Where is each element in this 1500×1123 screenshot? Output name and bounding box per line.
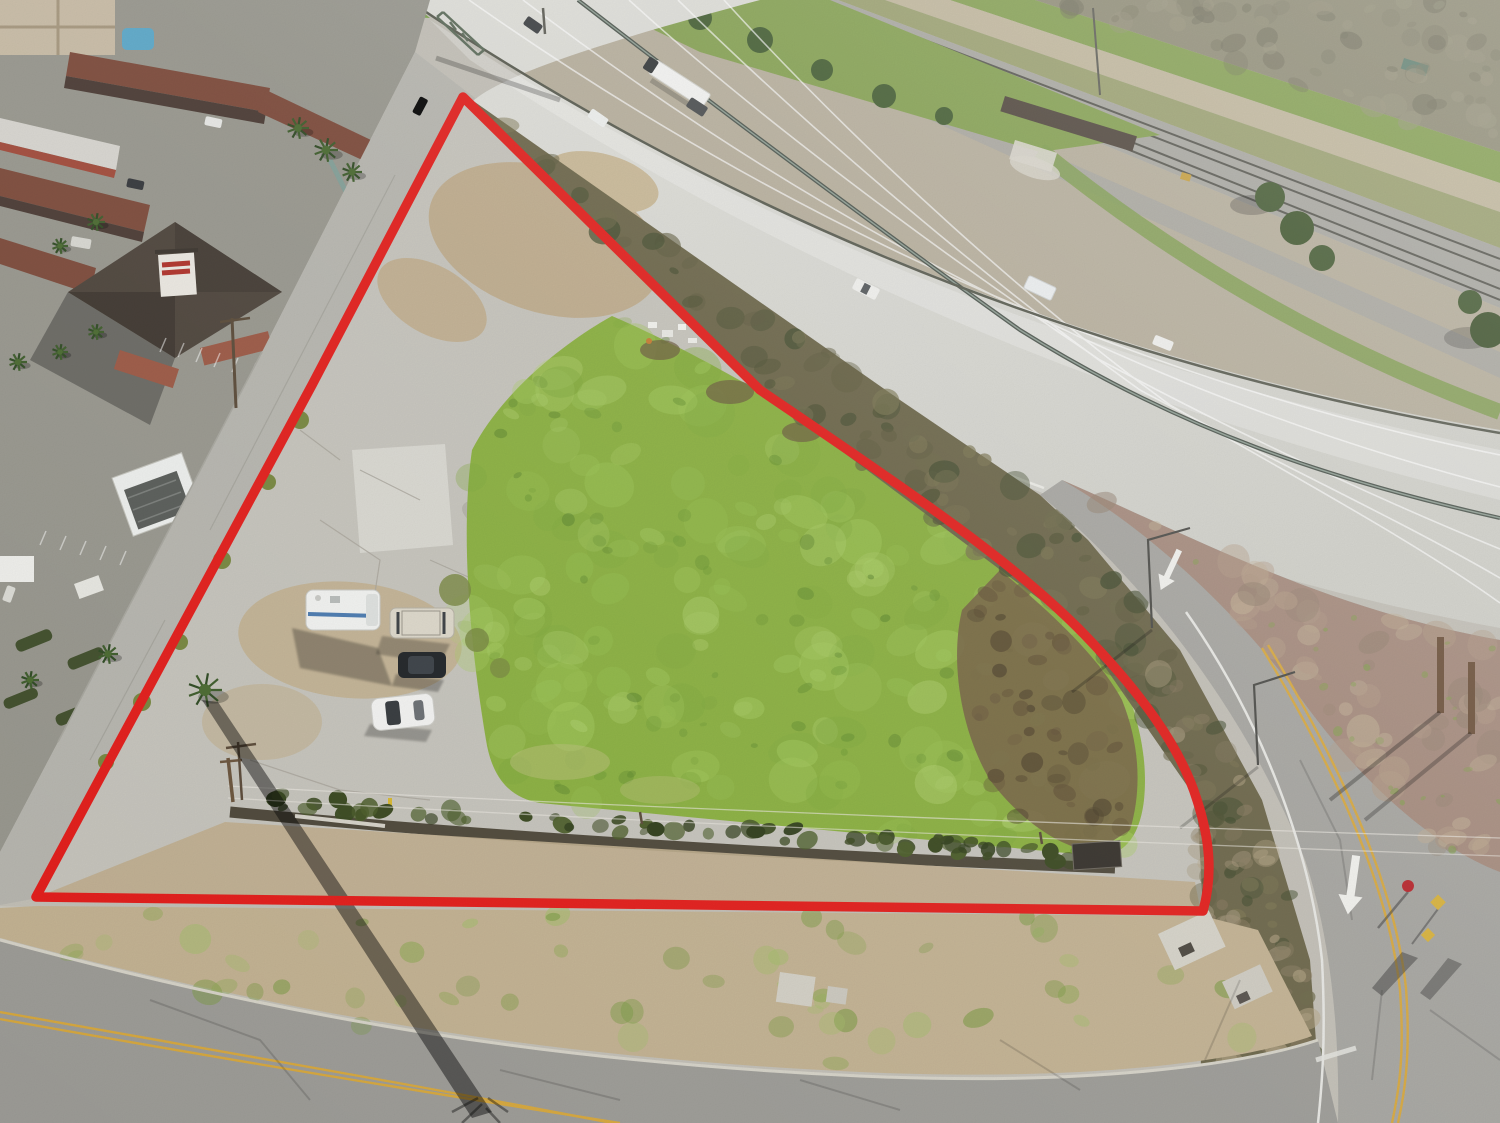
aerial-photo	[0, 0, 1500, 1123]
photo-grain	[0, 0, 1500, 1123]
scene-svg	[0, 0, 1500, 1123]
